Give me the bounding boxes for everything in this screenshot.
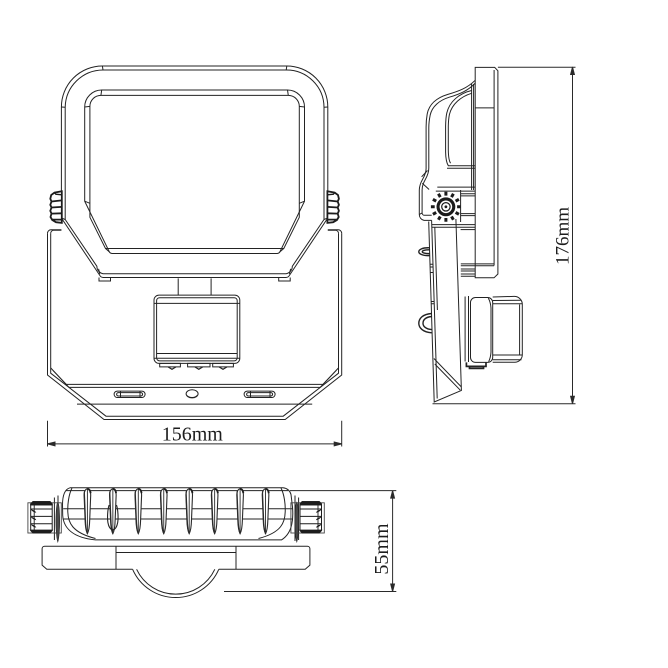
svg-text:156mm: 156mm xyxy=(162,424,224,446)
svg-text:176mm: 176mm xyxy=(553,207,574,265)
svg-text:55mm: 55mm xyxy=(371,523,393,575)
